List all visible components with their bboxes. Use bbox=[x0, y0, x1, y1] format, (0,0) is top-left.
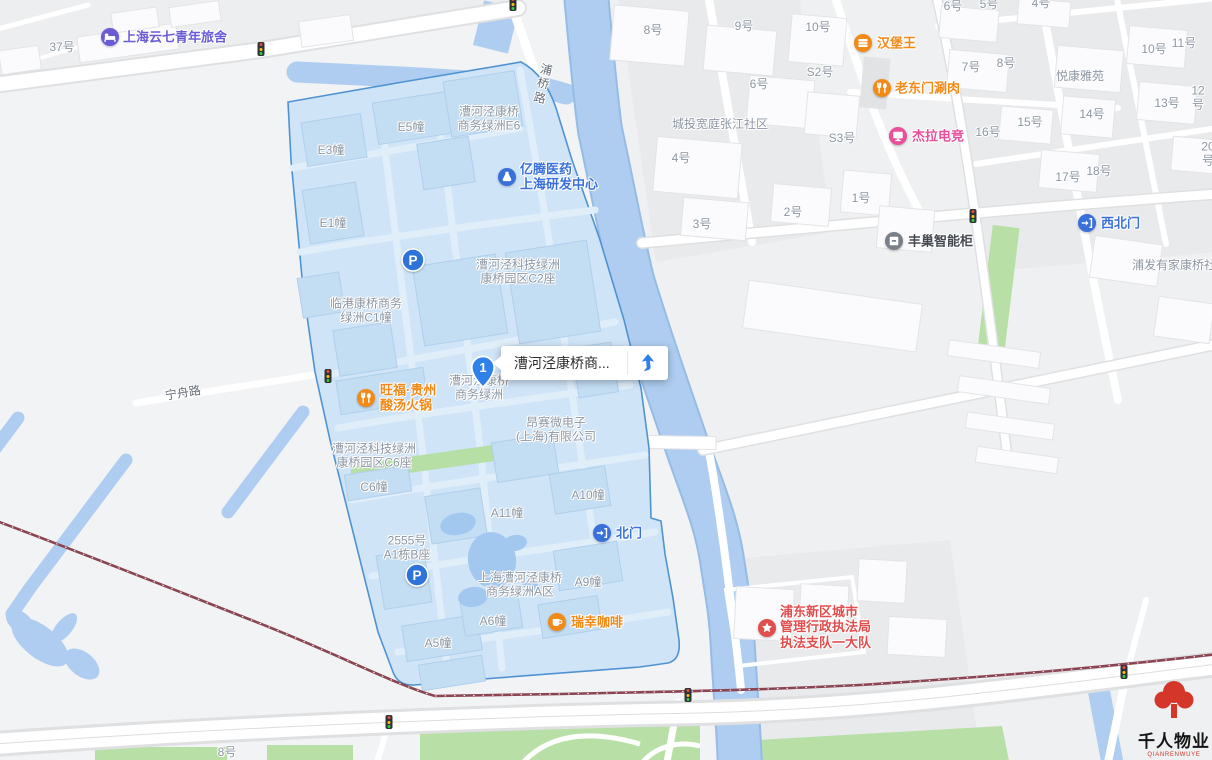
map-viewport[interactable]: 37号漕河泾康桥 商务绿洲E6E5幢E3幢E1幢漕河泾科技绿洲 康桥园区C2座临… bbox=[0, 0, 1212, 760]
map-pois-layer: 上海云七青年旅舍亿腾医药 上海研发中心旺福·贵州 酸汤火锅汉堡王老东门涮肉杰拉电… bbox=[0, 0, 1212, 760]
locker-icon[interactable] bbox=[885, 232, 904, 251]
poi-northwest-gate[interactable]: 西北门 bbox=[1101, 215, 1140, 230]
star-icon[interactable] bbox=[758, 619, 777, 638]
flask-icon[interactable] bbox=[498, 168, 517, 187]
route-arrow-icon bbox=[637, 352, 659, 374]
selected-place-name: 漕河泾康桥商... bbox=[501, 353, 627, 373]
food-icon[interactable] bbox=[873, 79, 892, 98]
poi-hostel[interactable]: 上海云七青年旅舍 bbox=[123, 29, 227, 44]
marker-number: 1 bbox=[479, 360, 486, 375]
poi-north-gate[interactable]: 北门 bbox=[616, 525, 642, 540]
gate-icon[interactable] bbox=[1078, 214, 1097, 233]
parking-icon[interactable]: P bbox=[401, 248, 425, 272]
poi-burger-king[interactable]: 汉堡王 bbox=[877, 35, 916, 50]
poi-luckin-coffee[interactable]: 瑞幸咖啡 bbox=[571, 614, 623, 629]
poi-fengchao-locker[interactable]: 丰巢智能柜 bbox=[908, 233, 973, 248]
svg-text:P: P bbox=[408, 253, 417, 268]
gate-icon[interactable] bbox=[593, 524, 612, 543]
infobox-callout bbox=[493, 356, 501, 370]
poi-jiela-esports[interactable]: 杰拉电竞 bbox=[912, 128, 964, 143]
poi-law-enforcement[interactable]: 浦东新区城市 管理行政执法局 执法支队一大队 bbox=[780, 604, 871, 650]
poi-yiteng-pharma[interactable]: 亿腾医药 上海研发中心 bbox=[520, 162, 598, 193]
burger-icon[interactable] bbox=[854, 34, 873, 53]
brand-latin: QIANRENWUYE bbox=[1138, 752, 1210, 758]
coffee-icon[interactable] bbox=[548, 613, 567, 632]
brand-title: 千人物业 bbox=[1138, 727, 1210, 752]
brand-logo: 千人物业 QIANRENWUYE bbox=[1138, 678, 1210, 758]
selected-place-infobox[interactable]: 漕河泾康桥商... bbox=[501, 346, 668, 380]
bed-icon[interactable] bbox=[101, 28, 120, 47]
food-icon[interactable] bbox=[357, 389, 376, 408]
tree-logo-icon bbox=[1148, 678, 1200, 722]
monitor-icon[interactable] bbox=[889, 127, 908, 146]
svg-text:P: P bbox=[412, 568, 421, 583]
route-button[interactable] bbox=[628, 352, 668, 374]
parking-icon[interactable]: P bbox=[405, 563, 429, 587]
poi-laodongmen[interactable]: 老东门涮肉 bbox=[895, 80, 960, 95]
poi-wangfu-hotpot[interactable]: 旺福·贵州 酸汤火锅 bbox=[380, 383, 436, 414]
